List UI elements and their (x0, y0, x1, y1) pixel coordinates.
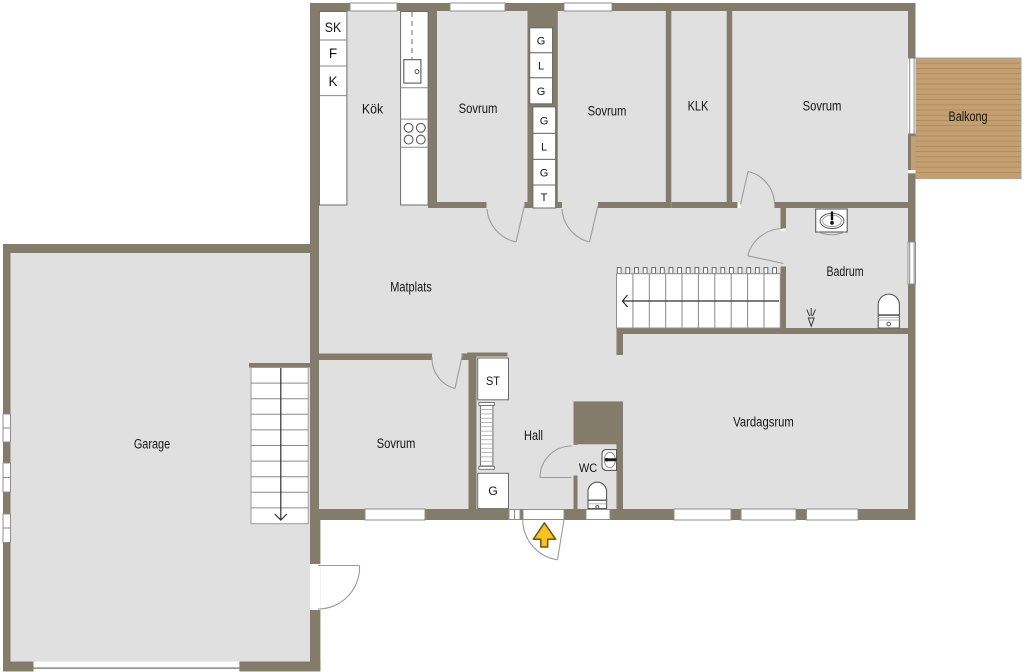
svg-text:Balkong: Balkong (949, 109, 988, 124)
svg-text:KLK: KLK (688, 99, 709, 114)
svg-text:Sovrum: Sovrum (588, 104, 627, 119)
svg-text:T: T (541, 192, 548, 204)
svg-text:Badrum: Badrum (827, 264, 864, 279)
svg-text:ST: ST (486, 374, 500, 388)
svg-text:G: G (537, 36, 546, 48)
svg-text:Garage: Garage (134, 437, 170, 452)
svg-text:Sovrum: Sovrum (377, 436, 416, 451)
svg-text:Matplats: Matplats (390, 279, 432, 294)
svg-text:G: G (540, 115, 549, 127)
svg-text:Vardagsrum: Vardagsrum (733, 414, 794, 429)
svg-text:L: L (541, 141, 547, 153)
svg-text:Kök: Kök (362, 102, 384, 117)
svg-text:F: F (329, 46, 337, 61)
svg-text:Hall: Hall (524, 428, 543, 443)
svg-text:G: G (540, 167, 549, 179)
svg-text:G: G (537, 86, 546, 98)
svg-text:Sovrum: Sovrum (803, 99, 842, 114)
svg-text:G: G (488, 484, 498, 498)
svg-text:L: L (538, 61, 544, 73)
svg-text:Sovrum: Sovrum (459, 101, 498, 116)
svg-text:K: K (328, 74, 337, 89)
svg-text:SK: SK (325, 20, 342, 35)
svg-text:WC: WC (579, 462, 597, 475)
